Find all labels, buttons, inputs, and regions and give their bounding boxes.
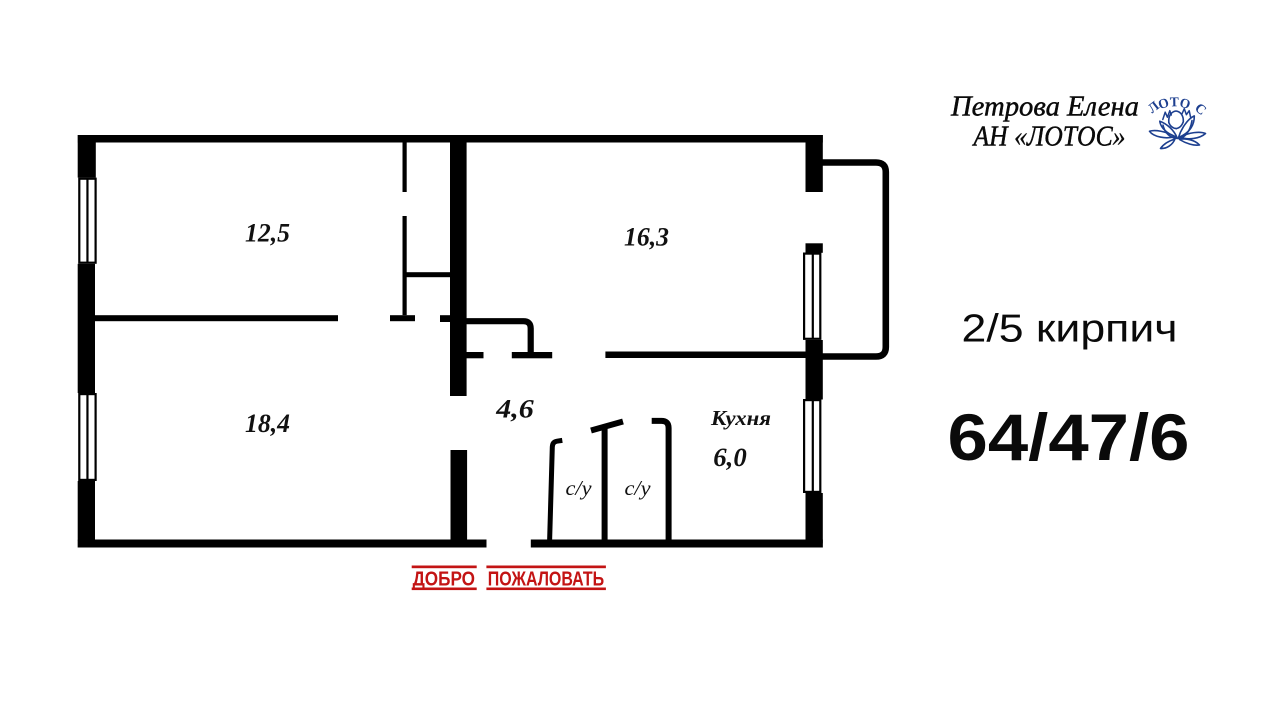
svg-text:2/5 кирпич: 2/5 кирпич xyxy=(962,308,1178,351)
svg-text:4,6: 4,6 xyxy=(495,395,534,424)
svg-text:18,4: 18,4 xyxy=(245,409,290,438)
svg-text:с/у: с/у xyxy=(625,476,652,500)
svg-text:12,5: 12,5 xyxy=(245,219,290,248)
svg-text:Кухня: Кухня xyxy=(710,406,771,430)
svg-text:Петрова Елена: Петрова Елена xyxy=(950,92,1139,123)
svg-text:ПОЖАЛОВАТЬ: ПОЖАЛОВАТЬ xyxy=(488,568,604,591)
svg-text:ДОБРО: ДОБРО xyxy=(413,568,475,591)
svg-text:64/47/6: 64/47/6 xyxy=(948,400,1190,474)
svg-text:АН «ЛОТОС»: АН «ЛОТОС» xyxy=(972,122,1126,153)
svg-text:16,3: 16,3 xyxy=(624,222,669,251)
svg-text:6,0: 6,0 xyxy=(713,443,747,472)
svg-text:с/у: с/у xyxy=(566,476,593,500)
